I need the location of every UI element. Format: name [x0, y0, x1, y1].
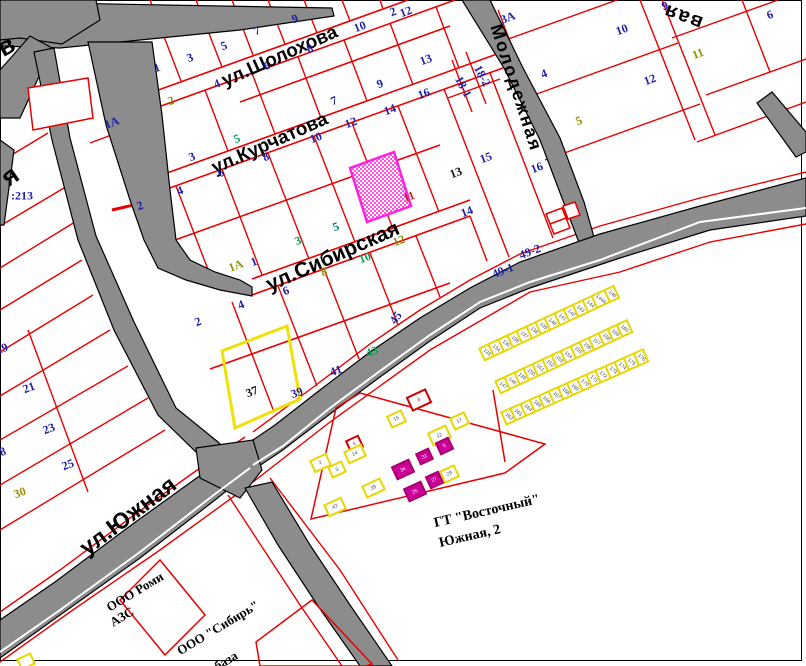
road-inner-diagonal [88, 42, 252, 296]
garage-territory-boundary [311, 390, 545, 519]
road-molodezhnaya [462, 0, 606, 262]
road-left-sliver [0, 140, 14, 225]
road-topright-stub [757, 92, 806, 157]
parcel-topleft-white [28, 78, 93, 130]
selected-parcel-hatched[interactable] [350, 152, 411, 222]
azs-parcel [120, 560, 205, 655]
cadastral-map: ул.Шолоховаул.Курчатоваул.СибирскаяМолод… [0, 0, 806, 666]
road-south-branch [245, 482, 392, 666]
map-canvas [0, 0, 806, 666]
road-casing-stripe [0, 208, 806, 652]
road-parallel-lines [0, 172, 806, 666]
